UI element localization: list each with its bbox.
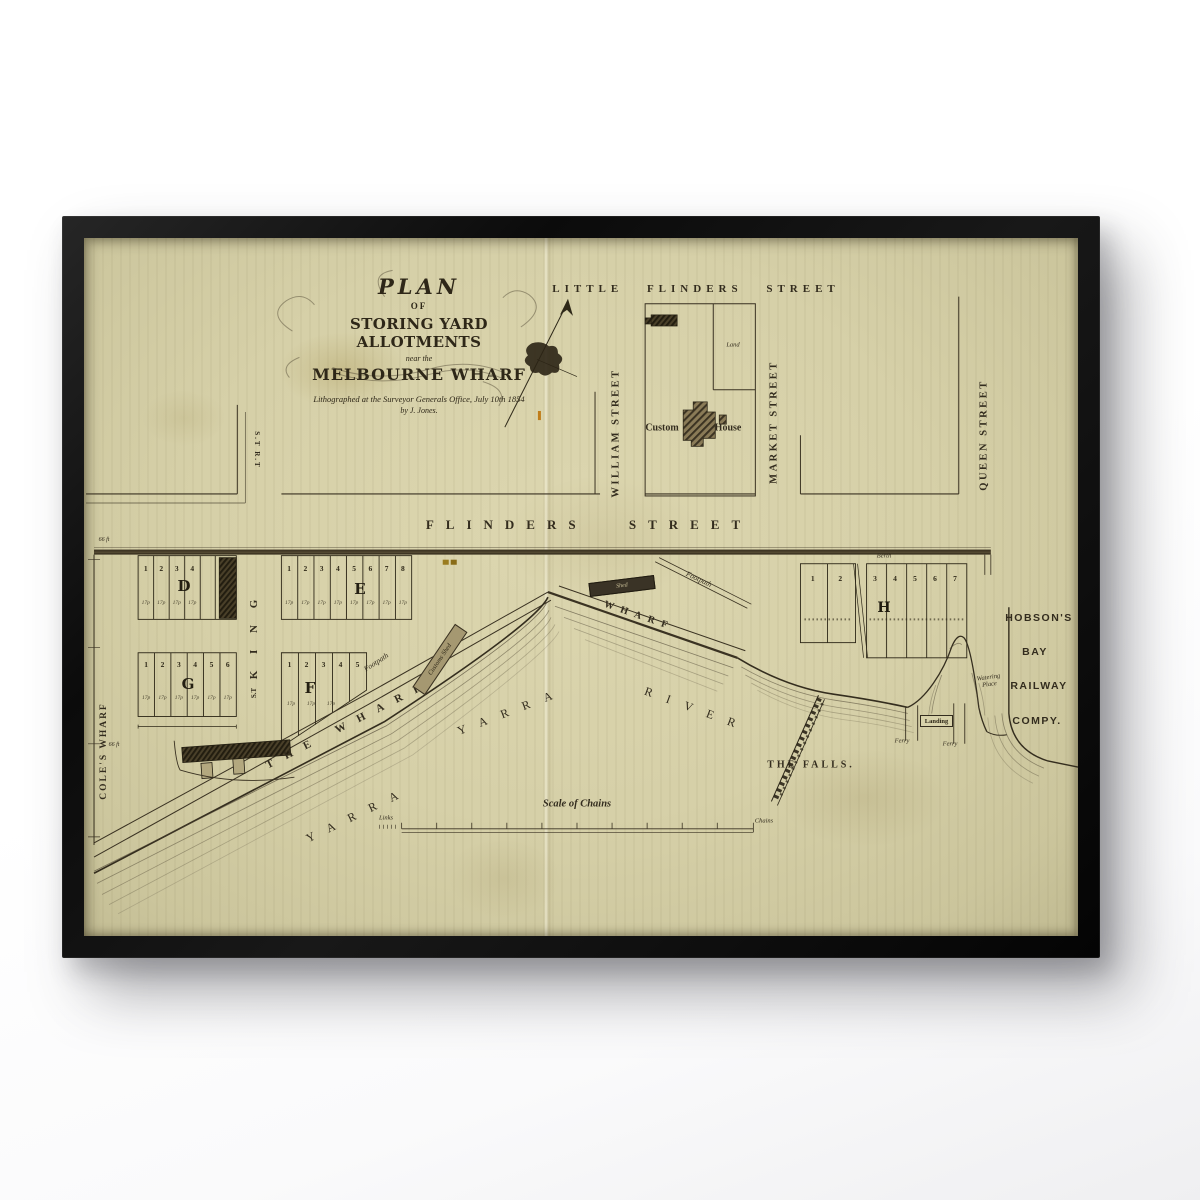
landing-box: Landing (920, 715, 953, 727)
lot-number: 1 (144, 660, 148, 669)
lot-size-label: 17p (142, 600, 150, 606)
map-linework (84, 238, 1078, 936)
block-g-lot-numbers: 123456 (138, 660, 236, 669)
survey-color-marks (443, 411, 541, 565)
lot-number: 3 (320, 564, 324, 573)
railway-label-railway: RAILWAY (1010, 680, 1067, 692)
lot-number: 1 (144, 564, 148, 573)
lot-size-label: 17p (318, 600, 326, 606)
block-f-lot-numbers: 12345 (281, 660, 366, 669)
picture-frame: PLAN OF STORING YARD ALLOTMENTS near the… (62, 216, 1100, 958)
lot-number: 8 (401, 564, 405, 573)
spencer-street-abbrev-label: S.T R.T (253, 431, 261, 468)
custom-label: Custom (645, 423, 678, 434)
lot-number: 4 (193, 660, 197, 669)
scale-title-label: Scale of Chains (543, 799, 611, 810)
custom-block-shed (645, 315, 677, 326)
lot-size-label: 17p (158, 695, 166, 701)
scale-chains-label: Chains (755, 818, 773, 825)
lot-number: 7 (385, 564, 389, 573)
block-h-east-lot-numbers: 34567 (865, 574, 965, 583)
lot-number: 6 (933, 574, 937, 583)
lot-number: 2 (838, 574, 842, 583)
lot-number: 1 (288, 660, 292, 669)
lot-size-label: 17p (191, 695, 199, 701)
market-street-label: MARKET STREET (769, 360, 780, 484)
lithograph-author: by J. Jones. (309, 406, 529, 415)
allotment-blocks (138, 556, 967, 747)
land-label: Land (726, 342, 739, 349)
ferry-label-west: Ferry (895, 738, 910, 745)
map-paper: PLAN OF STORING YARD ALLOTMENTS near the… (84, 238, 1078, 936)
lot-number: 5 (356, 660, 360, 669)
falls-weir (771, 695, 824, 805)
scale-links-label: Links (379, 815, 393, 822)
the-falls-label: THE FALLS. (767, 760, 855, 771)
lot-size-label: 17p (327, 701, 335, 707)
block-d-lot-numbers: 1234 (138, 564, 200, 573)
lot-size-label: 17p (207, 695, 215, 701)
lot-number: 3 (873, 574, 877, 583)
block-f-letter: F (305, 679, 316, 697)
wharf-frontage-band (94, 548, 991, 555)
block-f-lot-sizes: 17p17p17p (281, 701, 341, 707)
william-street-label: WILLIAM STREET (611, 368, 622, 497)
street-lines (86, 297, 991, 575)
title-of: OF (309, 301, 529, 311)
lot-number: 1 (287, 564, 291, 573)
block-g-lot-sizes: 17p17p17p17p17p17p (138, 695, 236, 701)
title-storing-yard: STORING YARD ALLOTMENTS (309, 315, 529, 351)
railway-label-bay: BAY (1022, 646, 1048, 658)
lot-number: 3 (322, 660, 326, 669)
lot-size-label: 17p (188, 600, 196, 606)
block-g-letter: G (182, 675, 195, 693)
lot-size-label: 17p (287, 701, 295, 707)
lot-number: 7 (953, 574, 957, 583)
lot-number: 4 (339, 660, 343, 669)
flinders-street-label: FLINDERS STREET (426, 517, 752, 533)
lot-number: 1 (811, 574, 815, 583)
ferry-label-east: Ferry (943, 741, 958, 748)
lot-size-label: 17p (173, 600, 181, 606)
lot-size-label: 17p (366, 600, 374, 606)
block-e-letter: E (354, 580, 365, 598)
title-melbourne-wharf: MELBOURNE WHARF (309, 365, 529, 384)
lot-number: 2 (304, 564, 308, 573)
lot-number: 5 (210, 660, 214, 669)
dimension-66ft-north: 66 ft (99, 537, 110, 543)
title-near-the: near the (309, 354, 529, 363)
block-e-lot-sizes: 17p17p17p17p17p17p17p17p (281, 600, 411, 606)
lot-number: 5 (352, 564, 356, 573)
lot-number: 4 (190, 564, 194, 573)
lot-size-label: 17p (175, 695, 183, 701)
lot-size-label: 17p (307, 701, 315, 707)
block-d-store-building (219, 558, 236, 619)
little-flinders-street-label: LITTLE FLINDERS STREET (552, 283, 840, 295)
lot-number: 2 (159, 564, 163, 573)
lot-number: 2 (161, 660, 165, 669)
scale-bar (380, 823, 754, 833)
lot-size-label: 17p (157, 600, 165, 606)
block-e-lot-numbers: 12345678 (281, 564, 411, 573)
queen-street-label: QUEEN STREET (979, 379, 990, 490)
lot-size-label: 17p (142, 695, 150, 701)
coles-wharf-label: COLE'S WHARF (99, 702, 109, 799)
house-label: House (715, 423, 742, 434)
block-h-letter: H (877, 600, 890, 616)
lot-size-label: 17p (399, 600, 407, 606)
railway-label-hobsons: HOBSON'S (1005, 612, 1073, 624)
railway-label-compy: COMPY. (1012, 715, 1061, 727)
lot-size-label: 17p (350, 600, 358, 606)
landing-label: Landing (925, 718, 949, 725)
product-photo-background: PLAN OF STORING YARD ALLOTMENTS near the… (0, 0, 1200, 1200)
lot-number: 5 (913, 574, 917, 583)
lot-number: 6 (226, 660, 230, 669)
title-block: PLAN OF STORING YARD ALLOTMENTS near the… (309, 274, 529, 415)
block-d-letter: D (177, 577, 190, 595)
lot-number: 4 (893, 574, 897, 583)
lot-number: 4 (336, 564, 340, 573)
dimension-66ft-south: 66 ft (109, 742, 120, 748)
lot-number: 3 (177, 660, 181, 669)
lot-size-label: 17p (383, 600, 391, 606)
lot-number: 6 (369, 564, 373, 573)
title-plan: PLAN (309, 274, 529, 299)
king-street-abbrev-label: S.T (250, 688, 258, 698)
block-d-lot-sizes: 17p17p17p17p (138, 600, 200, 606)
lithograph-credit: Lithographed at the Surveyor Generals Of… (309, 394, 529, 404)
berth-label: Berth (877, 553, 891, 560)
block-h-west-lot-numbers: 12 (799, 574, 854, 583)
king-street-label: K I N G (248, 593, 260, 680)
lot-number: 2 (305, 660, 309, 669)
river-shoreline (94, 597, 1078, 873)
lot-number: 3 (175, 564, 179, 573)
coles-wharf-line (88, 555, 100, 845)
lot-size-label: 17p (301, 600, 309, 606)
wharf-shed-label: Shed (616, 582, 628, 589)
lot-size-label: 17p (224, 695, 232, 701)
lot-size-label: 17p (334, 600, 342, 606)
lot-size-label: 17p (285, 600, 293, 606)
